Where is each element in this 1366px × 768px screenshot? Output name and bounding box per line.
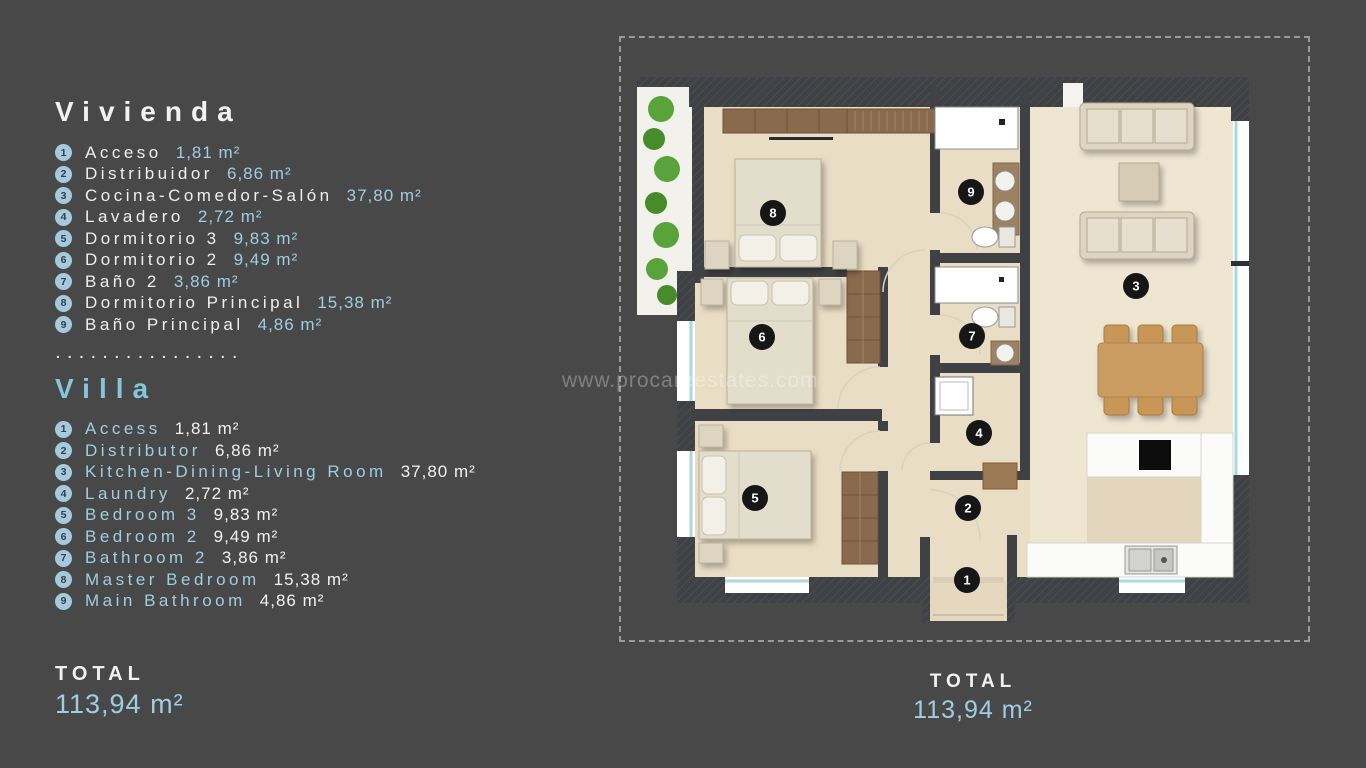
room-name: Master Bedroom [85,570,260,590]
svg-text:4: 4 [975,426,983,441]
vivienda-title: Vivienda [55,96,476,128]
item-number-badge: 7 [55,550,72,567]
item-number-badge: 5 [55,507,72,524]
room-name: Access [85,419,161,439]
kitchen-sink [1125,546,1177,574]
svg-text:7: 7 [968,329,975,344]
sofa-top [1080,103,1194,150]
room-area: 1,81 m² [176,143,241,163]
legend-item: 6Dormitorio 29,49 m² [55,250,476,272]
item-number-badge: 8 [55,295,72,312]
wardrobe-bedroom3 [842,472,878,564]
legend-item: 2Distribuidor6,86 m² [55,164,476,186]
legend-item: 6Bedroom 29,49 m² [55,526,476,548]
wardrobe-bedroom2 [847,271,880,363]
item-number-badge: 8 [55,571,72,588]
item-number-badge: 7 [55,273,72,290]
item-number-badge: 6 [55,252,72,269]
vivienda-room-list: 1Acceso1,81 m²2Distribuidor6,86 m²3Cocin… [55,142,476,336]
page: Vivienda 1Acceso1,81 m²2Distribuidor6,86… [0,0,1366,768]
room-area: 37,80 m² [347,186,422,206]
room-name: Kitchen-Dining-Living Room [85,462,387,482]
item-number-badge: 4 [55,209,72,226]
room-badge-8: 8 [760,200,786,226]
room-badge-1: 1 [954,567,980,593]
room-name: Baño 2 [85,272,160,292]
svg-text:8: 8 [769,206,776,221]
room-area: 6,86 m² [227,164,292,184]
legend-item: 7Baño 23,86 m² [55,271,476,293]
room-name: Lavadero [85,207,184,227]
room-area: 3,86 m² [174,272,239,292]
room-name: Distributor [85,441,201,461]
room-area: 9,49 m² [234,250,299,270]
room-area: 4,86 m² [260,591,325,611]
room-area: 2,72 m² [198,207,263,227]
legend-item: 1Access1,81 m² [55,419,476,441]
room-name: Dormitorio Principal [85,293,303,313]
room-name: Laundry [85,484,171,504]
legend-item: 5Dormitorio 39,83 m² [55,228,476,250]
sofa-bottom [1080,212,1194,259]
item-number-badge: 1 [55,421,72,438]
cooktop [1139,440,1171,470]
villa-room-list: 1Access1,81 m²2Distributor6,86 m²3Kitche… [55,419,476,613]
room-area: 9,83 m² [214,505,279,525]
room-area: 15,38 m² [274,570,349,590]
room-area: 2,72 m² [185,484,250,504]
total-left: TOTAL 113,94 m² [55,663,184,720]
svg-text:5: 5 [751,491,758,506]
item-number-badge: 9 [55,316,72,333]
legend-item: 8Master Bedroom15,38 m² [55,569,476,591]
villa-title: Villa [55,373,476,405]
legend-item: 3Kitchen-Dining-Living Room37,80 m² [55,462,476,484]
room-badge-2: 2 [955,495,981,521]
room-area: 4,86 m² [258,315,323,335]
room-badge-6: 6 [749,324,775,350]
room-area: 1,81 m² [175,419,240,439]
room-name: Bedroom 3 [85,505,200,525]
legend-item: 3Cocina-Comedor-Salón37,80 m² [55,185,476,207]
room-name: Dormitorio 2 [85,250,220,270]
item-number-badge: 1 [55,144,72,161]
room-name: Dormitorio 3 [85,229,220,249]
svg-text:9: 9 [967,185,974,200]
room-badge-9: 9 [958,179,984,205]
svg-text:2: 2 [964,501,971,516]
item-number-badge: 6 [55,528,72,545]
room-area: 9,83 m² [234,229,299,249]
watermark: www.procareestates.com [562,369,819,393]
legend-item: 9Main Bathroom4,86 m² [55,591,476,613]
total-left-value: 113,94 m² [55,689,184,720]
total-right: TOTAL 113,94 m² [628,671,1318,725]
dining-set [1098,325,1203,415]
room-area: 9,49 m² [214,527,279,547]
room-name: Acceso [85,143,162,163]
legend-item: 4Laundry2,72 m² [55,483,476,505]
svg-text:3: 3 [1132,279,1139,294]
coffee-table [1119,163,1159,201]
room-name: Cocina-Comedor-Salón [85,186,333,206]
legend-item: 7Bathroom 23,86 m² [55,548,476,570]
room-name: Baño Principal [85,315,244,335]
total-right-label: TOTAL [628,671,1318,693]
laundry-appliance [935,377,973,415]
total-right-unit: m² [1002,696,1033,724]
legend-item: 8Dormitorio Principal15,38 m² [55,293,476,315]
legend-item: 4Lavadero2,72 m² [55,207,476,229]
legend-item: 2Distributor6,86 m² [55,440,476,462]
legend-item: 1Acceso1,81 m² [55,142,476,164]
total-left-label: TOTAL [55,663,184,686]
total-left-number: 113,94 [55,689,142,719]
room-name: Distribuidor [85,164,213,184]
item-number-badge: 4 [55,485,72,502]
room-badge-3: 3 [1123,273,1149,299]
room-badge-4: 4 [966,420,992,446]
item-number-badge: 2 [55,166,72,183]
hall-cabinet [983,463,1017,489]
total-left-unit: m² [150,689,183,719]
room-area: 15,38 m² [317,293,392,313]
svg-text:1: 1 [963,573,970,588]
room-name: Bedroom 2 [85,527,200,547]
legend-panel: Vivienda 1Acceso1,81 m²2Distribuidor6,86… [55,96,476,612]
item-number-badge: 3 [55,187,72,204]
room-area: 6,86 m² [215,441,280,461]
room-area: 37,80 m² [401,462,476,482]
room-area: 3,86 m² [222,548,287,568]
room-name: Bathroom 2 [85,548,208,568]
item-number-badge: 2 [55,442,72,459]
item-number-badge: 3 [55,464,72,481]
legend-item: 5Bedroom 39,83 m² [55,505,476,527]
total-right-value: 113,94 m² [628,696,1318,725]
item-number-badge: 5 [55,230,72,247]
floor-plan: 1 2 3 4 5 6 7 8 9 [633,75,1261,628]
total-right-number: 113,94 [913,696,994,724]
svg-text:6: 6 [758,330,765,345]
legend-item: 9Baño Principal4,86 m² [55,314,476,336]
room-name: Main Bathroom [85,591,246,611]
room-badge-5: 5 [742,485,768,511]
dotted-separator: . . . . . . . . . . . . . . . . [56,345,476,361]
item-number-badge: 9 [55,593,72,610]
room-badge-7: 7 [959,323,985,349]
